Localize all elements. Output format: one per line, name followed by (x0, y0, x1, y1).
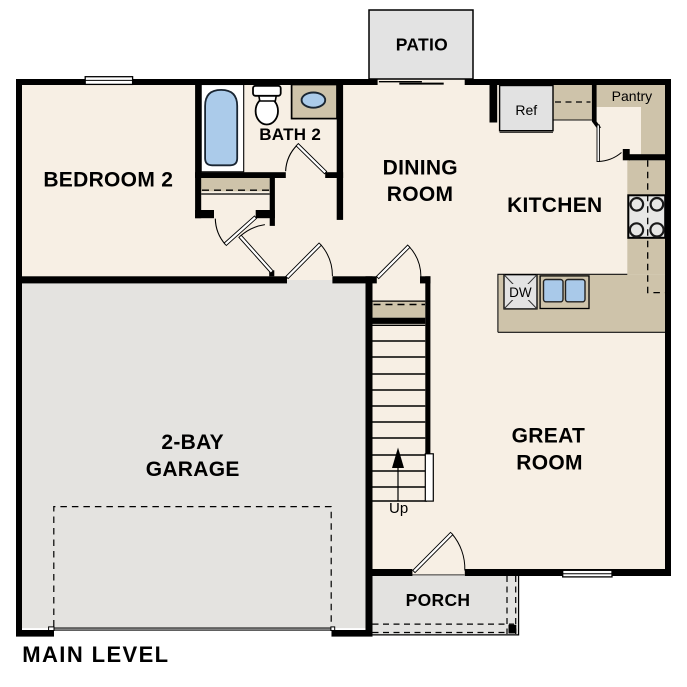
svg-text:DW: DW (509, 285, 532, 300)
svg-text:GARAGE: GARAGE (146, 458, 240, 481)
svg-text:DINING: DINING (383, 156, 458, 179)
svg-text:BATH 2: BATH 2 (259, 125, 321, 144)
svg-text:PORCH: PORCH (406, 590, 471, 610)
svg-text:GREAT: GREAT (512, 425, 585, 448)
svg-text:PATIO: PATIO (396, 35, 448, 55)
svg-text:BEDROOM 2: BEDROOM 2 (43, 169, 173, 192)
svg-text:2-BAY: 2-BAY (161, 431, 224, 454)
svg-text:Ref: Ref (515, 102, 537, 118)
svg-text:ROOM: ROOM (387, 183, 454, 206)
svg-text:Up: Up (389, 500, 408, 517)
svg-text:Pantry: Pantry (612, 88, 652, 104)
svg-text:MAIN LEVEL: MAIN LEVEL (22, 642, 169, 667)
svg-text:KITCHEN: KITCHEN (507, 194, 602, 217)
svg-text:ROOM: ROOM (516, 452, 583, 475)
